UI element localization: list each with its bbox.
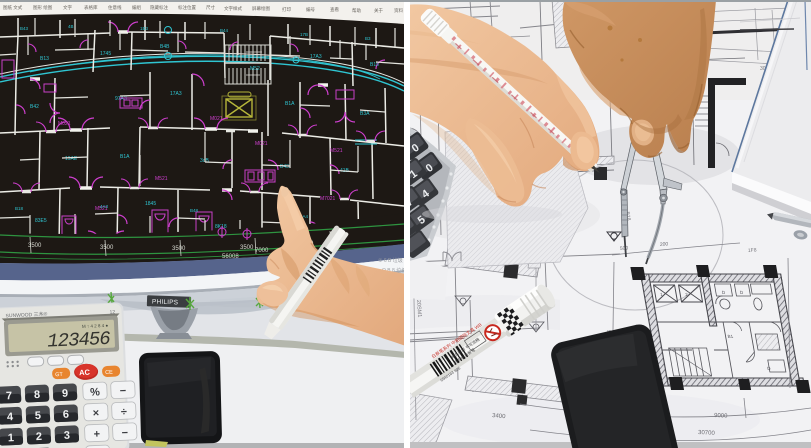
svg-text:−: − (120, 385, 127, 397)
svg-text:B1A: B1A (285, 101, 295, 107)
svg-text:M021: M021 (255, 141, 268, 147)
svg-text:+: + (93, 428, 100, 440)
svg-text:−: − (121, 427, 128, 439)
svg-text:文字: 文字 (63, 4, 72, 11)
svg-text:1745: 1745 (100, 51, 111, 57)
svg-text:1: 1 (8, 432, 15, 444)
svg-text:编组: 编组 (132, 4, 141, 11)
svg-text:1F8: 1F8 (748, 247, 757, 254)
svg-text:3400: 3400 (492, 413, 506, 420)
svg-text:3500: 3500 (172, 246, 186, 252)
svg-text:资料: 资料 (394, 7, 403, 14)
svg-text:7: 7 (6, 390, 13, 402)
svg-text:7000: 7000 (255, 248, 269, 254)
svg-text:B4B: B4B (160, 44, 170, 50)
svg-text:B44: B44 (220, 28, 229, 33)
svg-text:B3A: B3A (360, 111, 370, 117)
svg-text:M021: M021 (210, 116, 223, 122)
svg-text:1B3: 1B3 (140, 26, 149, 31)
svg-text:B43: B43 (20, 26, 29, 31)
svg-text:5: 5 (35, 410, 42, 422)
svg-text:屏幕绘图: 屏幕绘图 (252, 5, 270, 12)
svg-text:3500: 3500 (100, 245, 114, 251)
svg-text:B1A: B1A (120, 154, 130, 160)
svg-text:查看: 查看 (330, 6, 339, 13)
svg-text:97A3: 97A3 (115, 96, 127, 102)
svg-text:关于: 关于 (374, 7, 383, 14)
svg-text:8: 8 (34, 389, 41, 401)
svg-text:尺寸: 尺寸 (206, 4, 215, 11)
svg-text:B18: B18 (15, 206, 24, 211)
svg-text:3: 3 (64, 430, 71, 442)
svg-text:83E5: 83E5 (35, 218, 47, 224)
svg-text:B43: B43 (280, 164, 289, 170)
svg-text:帮助: 帮助 (352, 7, 361, 14)
svg-text:B13: B13 (40, 56, 49, 62)
svg-text:3500: 3500 (240, 245, 254, 251)
svg-text:打印: 打印 (282, 6, 291, 13)
svg-text:标注位置: 标注位置 (178, 4, 196, 11)
svg-text:B42: B42 (30, 104, 39, 110)
svg-text:17A3: 17A3 (310, 54, 322, 60)
svg-text:① 6 B 垃圾: ① 6 B 垃圾 (378, 257, 403, 264)
svg-text:3500: 3500 (28, 243, 42, 249)
svg-text:200: 200 (660, 241, 669, 248)
svg-text:住意线: 住意线 (108, 4, 122, 10)
svg-text:图纸 文式: 图纸 文式 (3, 4, 23, 11)
svg-text:B48: B48 (190, 208, 199, 213)
svg-text:20SM1: 20SM1 (415, 300, 422, 318)
svg-text:30700: 30700 (698, 430, 716, 437)
svg-text:B3: B3 (365, 36, 371, 41)
svg-text:GT: GT (55, 372, 64, 378)
svg-text:123456: 123456 (47, 328, 111, 353)
svg-text:PHILIPS: PHILIPS (152, 298, 179, 306)
svg-text:×: × (92, 407, 99, 419)
svg-text:500: 500 (620, 245, 629, 252)
svg-text:隐藏标注: 隐藏标注 (150, 4, 168, 11)
svg-text:图形 绘图: 图形 绘图 (33, 4, 53, 11)
svg-text:1845: 1845 (145, 201, 156, 207)
svg-text:17A3: 17A3 (170, 91, 182, 97)
svg-text:%: % (90, 386, 101, 398)
svg-text:表格库: 表格库 (84, 4, 98, 11)
svg-text:4B: 4B (68, 24, 74, 29)
svg-text:编号: 编号 (306, 6, 315, 13)
svg-text:M7021: M7021 (320, 196, 336, 202)
svg-text:2: 2 (36, 431, 43, 443)
svg-text:B15: B15 (370, 62, 379, 68)
svg-text:9000: 9000 (714, 413, 728, 420)
svg-text:6: 6 (63, 409, 70, 421)
svg-text:4A3: 4A3 (100, 204, 109, 209)
svg-text:12: 12 (109, 310, 115, 316)
svg-text:÷: ÷ (121, 406, 128, 418)
svg-text:M521: M521 (330, 148, 343, 154)
svg-text:M521: M521 (155, 176, 168, 182)
svg-text:M52: M52 (250, 66, 260, 72)
svg-text:文字样式: 文字样式 (224, 5, 242, 12)
svg-text:AC: AC (79, 368, 91, 377)
svg-text:CE: CE (105, 370, 113, 376)
svg-text:17B: 17B (300, 32, 308, 37)
svg-text:9: 9 (62, 388, 69, 400)
